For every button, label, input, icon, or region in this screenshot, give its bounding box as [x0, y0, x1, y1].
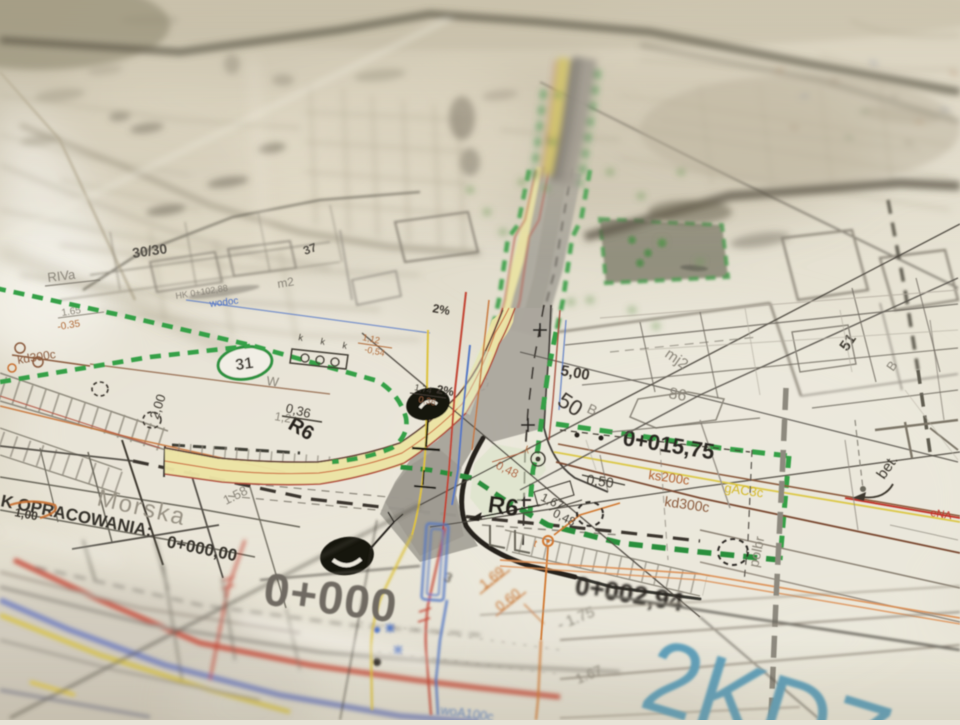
svg-text:R6: R6 [486, 491, 520, 522]
svg-text:86: 86 [667, 385, 688, 405]
svg-text:m2: m2 [276, 274, 295, 290]
svg-text:31: 31 [234, 355, 254, 374]
